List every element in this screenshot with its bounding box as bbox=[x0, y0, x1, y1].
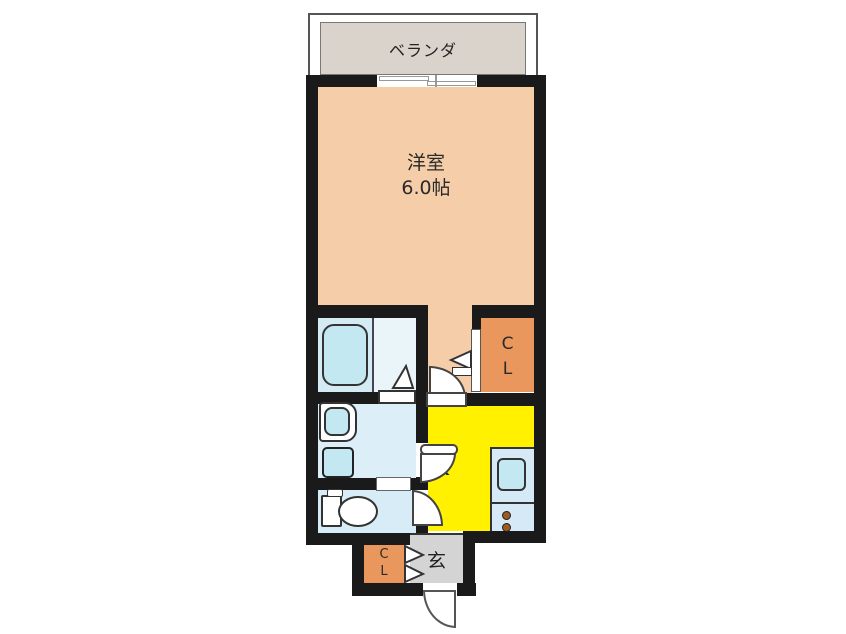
bathtub bbox=[322, 324, 368, 386]
kitchen-sink bbox=[497, 458, 526, 491]
western-room: 洋室 6.0帖 bbox=[318, 87, 534, 305]
stove-burner bbox=[502, 511, 511, 520]
toilet-bowl bbox=[338, 496, 378, 527]
closet-lower-label: C bbox=[364, 546, 404, 563]
closet-upper-label: L bbox=[481, 357, 534, 382]
wall bbox=[463, 531, 546, 543]
closet-lower-label: L bbox=[364, 563, 404, 580]
washing-machine bbox=[322, 447, 354, 478]
closet-upper: C L bbox=[481, 318, 534, 392]
washbasin-bowl bbox=[324, 407, 350, 436]
balcony-label: ベランダ bbox=[389, 37, 457, 61]
western-room-size: 6.0帖 bbox=[318, 176, 534, 201]
bifold-door bbox=[404, 545, 425, 583]
toilet-button bbox=[327, 489, 343, 497]
bathroom-door-triangle bbox=[392, 365, 414, 390]
wall bbox=[352, 583, 476, 596]
wall bbox=[416, 305, 428, 443]
floor-plan: ベランダ 洋室 6.0帖 C L K 玄 C L bbox=[0, 0, 846, 634]
counter-divider bbox=[490, 502, 534, 504]
sliding-window bbox=[379, 76, 429, 81]
wall bbox=[466, 393, 546, 406]
door-leaf bbox=[426, 392, 467, 407]
wall bbox=[472, 305, 546, 318]
balcony-floor: ベランダ bbox=[320, 22, 526, 75]
window-mullion bbox=[435, 75, 437, 87]
wall bbox=[306, 305, 427, 318]
entrance-door-arc bbox=[423, 590, 456, 628]
entrance-label: 玄 bbox=[427, 546, 446, 573]
closet-lower: C L bbox=[364, 545, 404, 583]
closet-upper-label: C bbox=[481, 332, 534, 357]
western-room-label: 洋室 bbox=[318, 151, 534, 176]
door-opening bbox=[376, 477, 411, 491]
bathroom-door-bar bbox=[378, 390, 416, 404]
